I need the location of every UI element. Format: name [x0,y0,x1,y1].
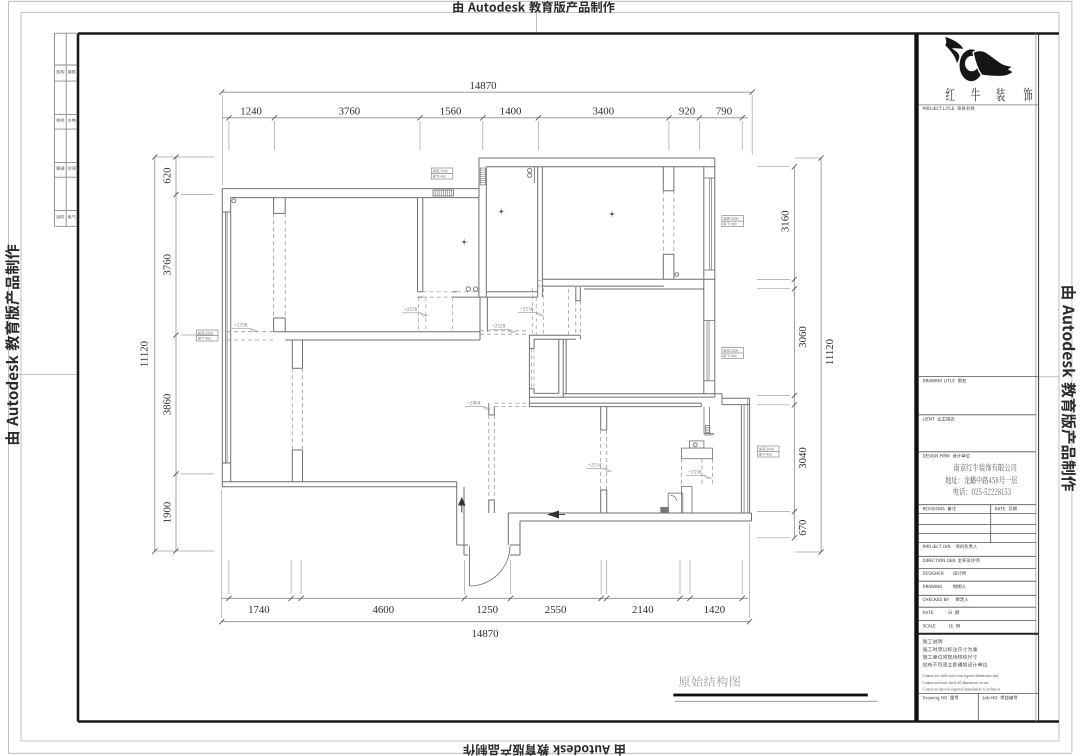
svg-text:1250: 1250 [476,604,498,616]
svg-text:2140: 2140 [632,604,654,616]
svg-text:Contractors shall work from fi: Contractors shall work from figured dime… [923,674,1000,678]
svg-text:1900: 1900 [162,502,174,524]
svg-text:3400: 3400 [593,106,615,118]
svg-text:1240: 1240 [240,106,262,118]
svg-text:790: 790 [716,106,732,118]
svg-text:+2864: +2864 [467,401,481,407]
svg-text:+2538: +2538 [688,470,702,476]
svg-text:3760: 3760 [162,254,174,276]
svg-text:4600: 4600 [373,604,395,616]
svg-text:3760: 3760 [339,106,361,118]
svg-text:1400: 1400 [500,106,522,118]
svg-text:11120: 11120 [824,339,836,365]
svg-text:14870: 14870 [472,628,499,640]
svg-text:Contractor must be reported im: Contractor must be reported immediately … [923,688,1001,692]
svg-text:11120: 11120 [139,341,151,367]
svg-text:14870: 14870 [470,80,497,92]
svg-text:3160: 3160 [780,211,792,233]
svg-text:+2534: +2534 [588,463,602,469]
svg-text:3060: 3060 [797,326,809,348]
svg-text:1560: 1560 [440,106,462,118]
svg-text:2550: 2550 [545,604,567,616]
svg-text:+2338: +2338 [234,323,248,329]
svg-text:670: 670 [797,520,809,536]
svg-text:+2528: +2528 [492,324,506,330]
svg-text:1740: 1740 [248,604,270,616]
svg-text:+2536: +2536 [520,307,534,313]
svg-text:3040: 3040 [797,447,809,469]
svg-text:1420: 1420 [704,604,726,616]
svg-text:920: 920 [679,106,695,118]
svg-text:+2578: +2578 [404,307,418,313]
svg-text:620: 620 [162,167,174,183]
svg-text:3860: 3860 [162,394,174,416]
svg-text:Contractors must check all dim: Contractors must check all dimensions on… [923,681,989,685]
